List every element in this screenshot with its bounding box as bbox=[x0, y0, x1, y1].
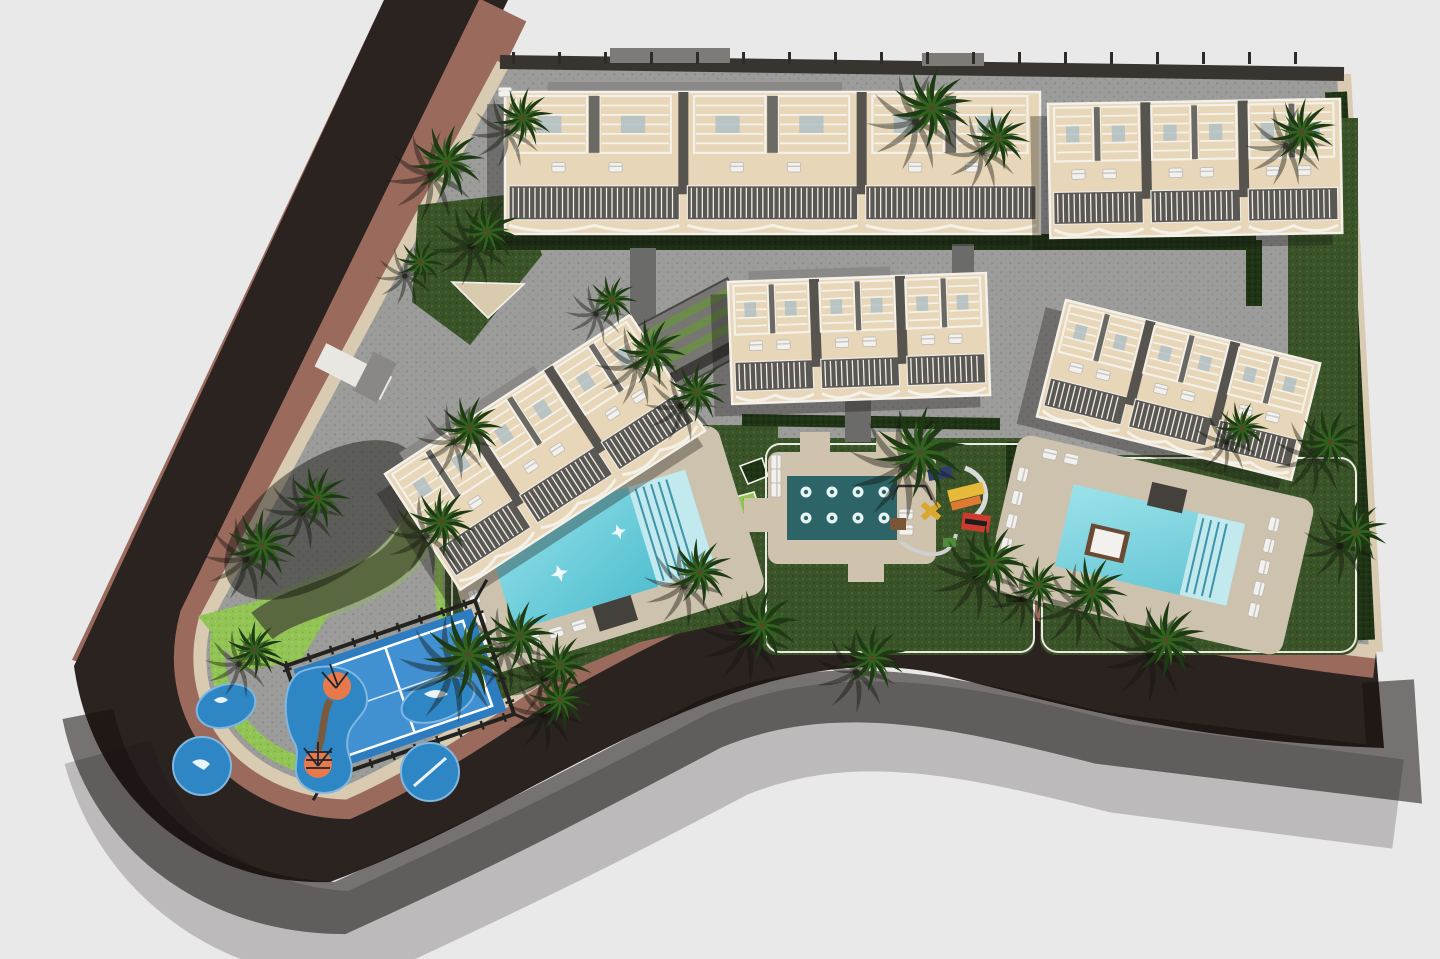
sun-lounger bbox=[1297, 166, 1310, 176]
sun-lounger bbox=[771, 455, 781, 469]
site-plan-svg bbox=[0, 0, 1440, 959]
top-wall-block bbox=[610, 48, 730, 63]
sun-lounger bbox=[899, 509, 913, 519]
sun-lounger bbox=[1103, 169, 1116, 179]
deck-stub bbox=[800, 432, 830, 458]
sun-lounger bbox=[771, 469, 781, 483]
sun-lounger bbox=[921, 335, 935, 345]
sun-lounger bbox=[1072, 170, 1085, 180]
hedge-corner bbox=[1246, 240, 1262, 306]
sun-lounger bbox=[1200, 167, 1213, 177]
sun-lounger bbox=[609, 163, 622, 173]
sun-lounger bbox=[863, 337, 877, 347]
sun-lounger bbox=[749, 341, 763, 351]
deck-stub bbox=[848, 560, 884, 582]
spa-jet-pool bbox=[787, 476, 897, 540]
sun-lounger bbox=[1169, 168, 1182, 178]
deck-stub bbox=[744, 498, 772, 532]
sun-lounger bbox=[909, 163, 922, 173]
sun-lounger bbox=[949, 334, 963, 344]
sun-lounger bbox=[552, 163, 565, 173]
residential-block bbox=[487, 82, 1040, 246]
sun-lounger bbox=[771, 483, 781, 497]
sun-lounger bbox=[787, 163, 800, 173]
sun-lounger bbox=[835, 338, 849, 348]
sun-lounger bbox=[777, 340, 791, 350]
sun-lounger bbox=[730, 163, 743, 173]
site-plan-render bbox=[0, 0, 1440, 959]
residential-block bbox=[710, 263, 991, 417]
